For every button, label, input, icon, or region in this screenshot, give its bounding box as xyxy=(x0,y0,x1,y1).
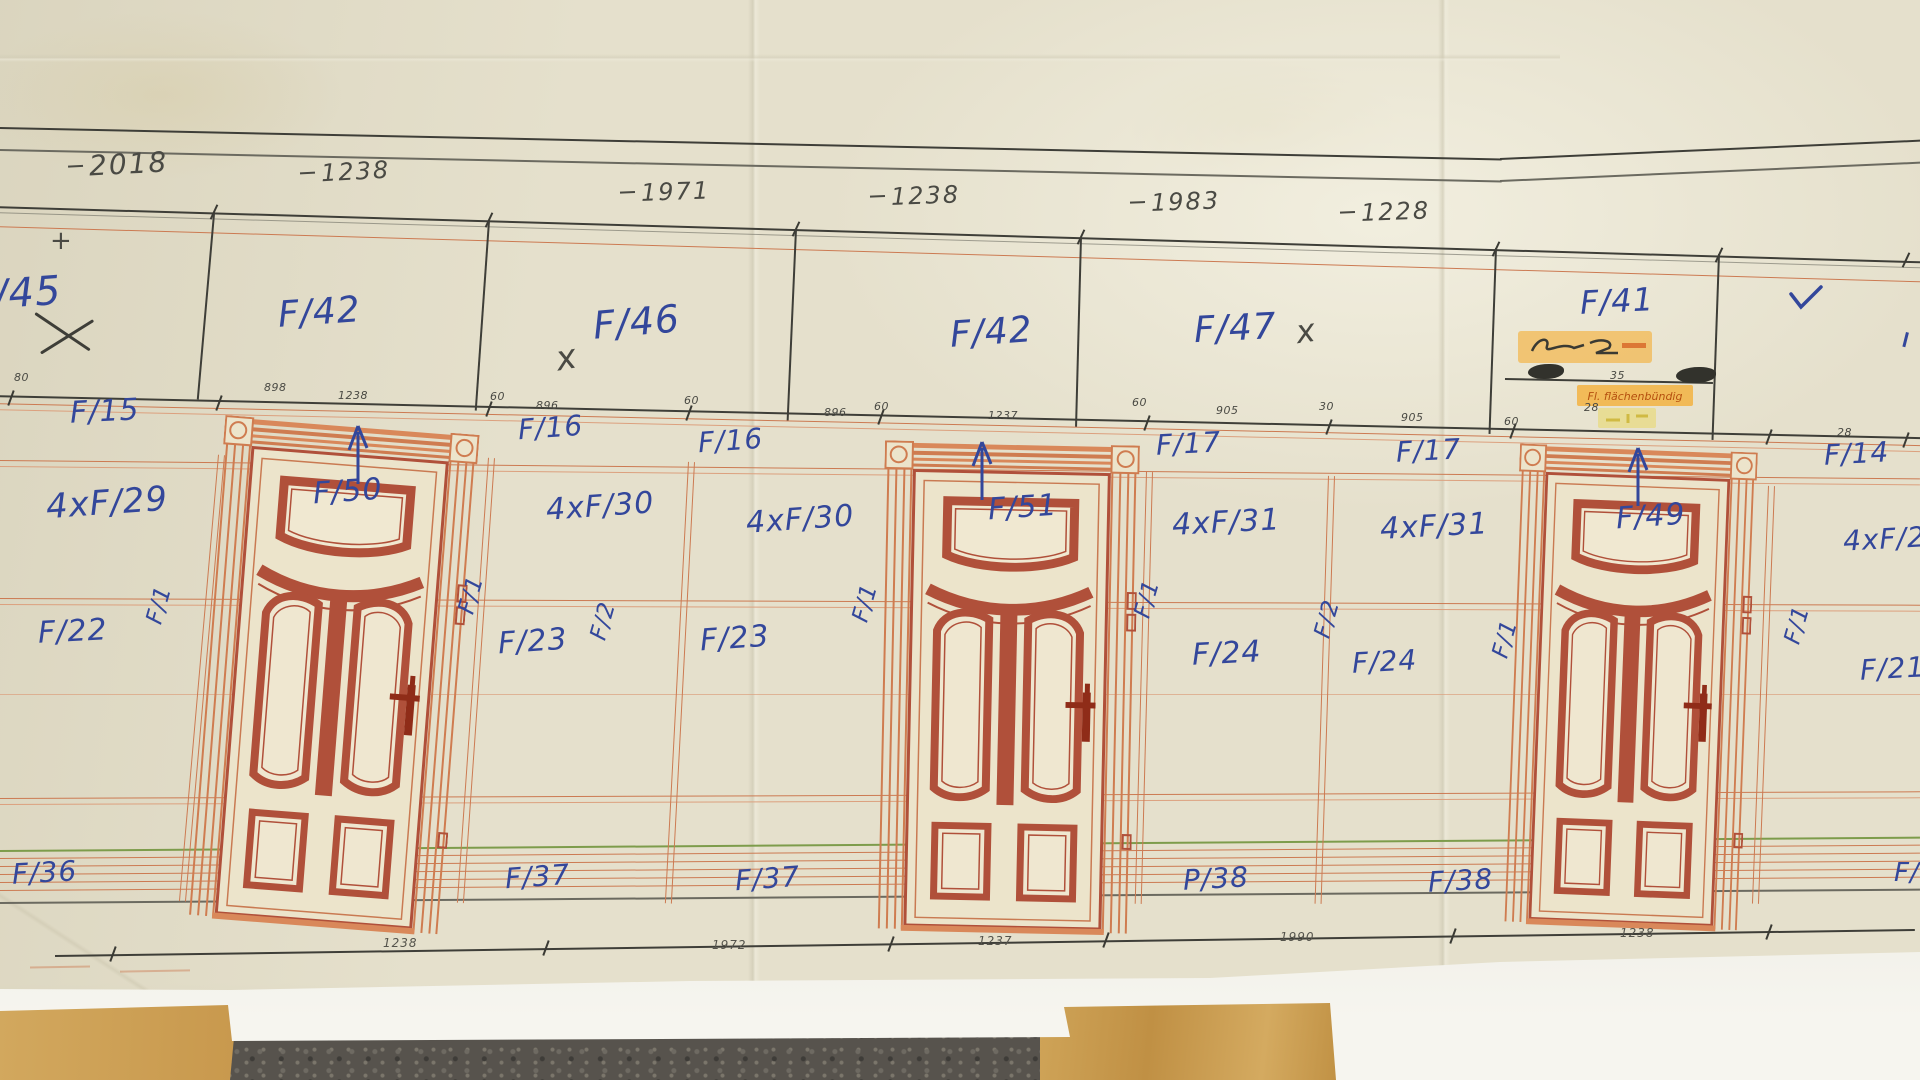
dim-label: 1238 xyxy=(870,180,961,211)
panel-label-f22: F/22 xyxy=(37,612,108,651)
rail-dim: 1238 xyxy=(338,389,368,402)
rail-dim: 60 xyxy=(1504,415,1519,428)
panel-label-4xf30b: 4xF/30 xyxy=(745,498,856,540)
panel-label-partial: F/ xyxy=(1894,858,1920,888)
sheet-border-line xyxy=(1500,139,1920,160)
faint-mark xyxy=(120,969,190,972)
dim-label: 1983 xyxy=(1130,186,1221,217)
pencil-blob xyxy=(1528,364,1564,379)
panel-label-4xf29: 4xF/29 xyxy=(45,479,170,527)
highlight-yellow-patch xyxy=(1598,408,1656,428)
bottom-dim-label: 1237 xyxy=(978,934,1013,948)
rail-dim: 60 xyxy=(684,394,699,407)
transom-divider xyxy=(197,214,215,399)
rail-dim: 60 xyxy=(874,400,889,413)
rail-label-f15: F/15 xyxy=(69,392,140,431)
transom-divider xyxy=(1489,248,1497,434)
paper-crease xyxy=(0,54,1560,62)
rail-label-f16: F/16 xyxy=(517,409,584,446)
bottom-dim-label: 1238 xyxy=(383,936,418,950)
pencil-x-small: x xyxy=(1293,311,1317,351)
pencil-blob xyxy=(1676,367,1716,383)
door-label-f51: F/51 xyxy=(987,488,1059,528)
faint-mark xyxy=(30,965,90,968)
transom-divider xyxy=(475,221,490,411)
dim-label: 1238 xyxy=(299,156,390,189)
rail-dim: 35 xyxy=(1610,369,1625,382)
panel-label-f24: F/24 xyxy=(1191,634,1262,673)
blue-partial-mark xyxy=(1902,332,1909,347)
door-label-f49: F/49 xyxy=(1615,497,1687,537)
transom-label-f42: F/42 xyxy=(277,289,362,336)
panel-label-f23: F/23 xyxy=(497,622,569,662)
rail-dim: 905 xyxy=(1401,411,1424,424)
rail-dim: 80 xyxy=(14,371,29,384)
photo-of-architectural-drawing: 2018 1238 1971 1238 1983 1228 /45 F/42 F… xyxy=(0,0,1920,1080)
transom-label-f41: F/41 xyxy=(1579,280,1655,322)
rail-label-f17b: F/17 xyxy=(1395,432,1462,468)
rail-label-f14: F/14 xyxy=(1823,435,1890,471)
paper-crease xyxy=(748,0,760,990)
panel-label-f23b: F/23 xyxy=(699,619,771,659)
door-label-f50: F/50 xyxy=(312,472,384,512)
panel-label-f24b: F/24 xyxy=(1351,643,1418,679)
panel-label-4xf31b: 4xF/31 xyxy=(1379,506,1489,547)
bay-divider xyxy=(1315,476,1335,904)
bottom-dim-label: 1990 xyxy=(1280,930,1315,944)
top-dimension-line-echo xyxy=(0,212,1920,270)
pencil-x-mark xyxy=(34,312,90,351)
panel-label-p38: P/38 xyxy=(1182,860,1250,896)
panel-label-f37b: F/37 xyxy=(734,860,801,897)
dim-label: 1971 xyxy=(620,176,711,207)
drawing-sheet: 2018 1238 1971 1238 1983 1228 /45 F/42 F… xyxy=(0,0,1920,1080)
rail-dim: 896 xyxy=(824,406,847,419)
rail-dim: 60 xyxy=(490,390,505,403)
jamb-label-f1c: F/1 xyxy=(847,581,883,625)
pencil-x-small: x xyxy=(553,337,580,380)
transom-label-f46: F/46 xyxy=(591,296,682,347)
panel-label-f36: F/36 xyxy=(11,854,78,890)
pencil-plus-mark: + xyxy=(50,226,72,256)
panel-label-4xf31: 4xF/31 xyxy=(1171,502,1281,543)
bottom-dim-label: 1238 xyxy=(1620,926,1655,940)
transom-divider xyxy=(787,229,797,421)
rail-dim: 905 xyxy=(1216,404,1239,417)
rail-dim: 1237 xyxy=(988,409,1018,422)
panel-label-f21: F/21 xyxy=(1859,650,1920,686)
up-arrow-icon xyxy=(962,436,1002,500)
up-arrow-icon xyxy=(1618,442,1658,506)
dim-label: 2018 xyxy=(67,145,169,183)
bottom-dim-label: 1972 xyxy=(712,938,747,952)
rail-label-f16b: F/16 xyxy=(697,422,764,459)
rail-label-f17: F/17 xyxy=(1155,425,1222,461)
panel-label-f38: F/38 xyxy=(1427,862,1494,898)
panel-label-4xf30: 4xF/30 xyxy=(545,485,656,527)
bay-divider xyxy=(665,462,695,904)
highlight-note-text: Fl. flächenbündig xyxy=(1588,390,1683,403)
rail-dim: 28 xyxy=(1584,401,1599,414)
rail-dim: 898 xyxy=(264,381,287,394)
highlight-strip-scribble xyxy=(1518,331,1652,363)
dim-label: 1228 xyxy=(1340,196,1431,227)
rail-dim: 30 xyxy=(1319,400,1334,413)
panel-label-f37: F/37 xyxy=(504,858,571,895)
transom-label-f45: /45 xyxy=(0,268,63,319)
rail-dim: 60 xyxy=(1132,396,1147,409)
transom-label-f42b: F/42 xyxy=(949,309,1034,356)
transom-divider xyxy=(1712,254,1720,440)
jamb-label-f1: F/1 xyxy=(141,583,177,627)
sheet-border-line xyxy=(1500,161,1920,182)
transom-label-f47: F/47 xyxy=(1193,306,1278,351)
transom-divider xyxy=(1075,237,1082,427)
panel-label-4xf22: 4xF/22 xyxy=(1842,519,1920,557)
blue-checkmark-icon xyxy=(1786,282,1826,312)
